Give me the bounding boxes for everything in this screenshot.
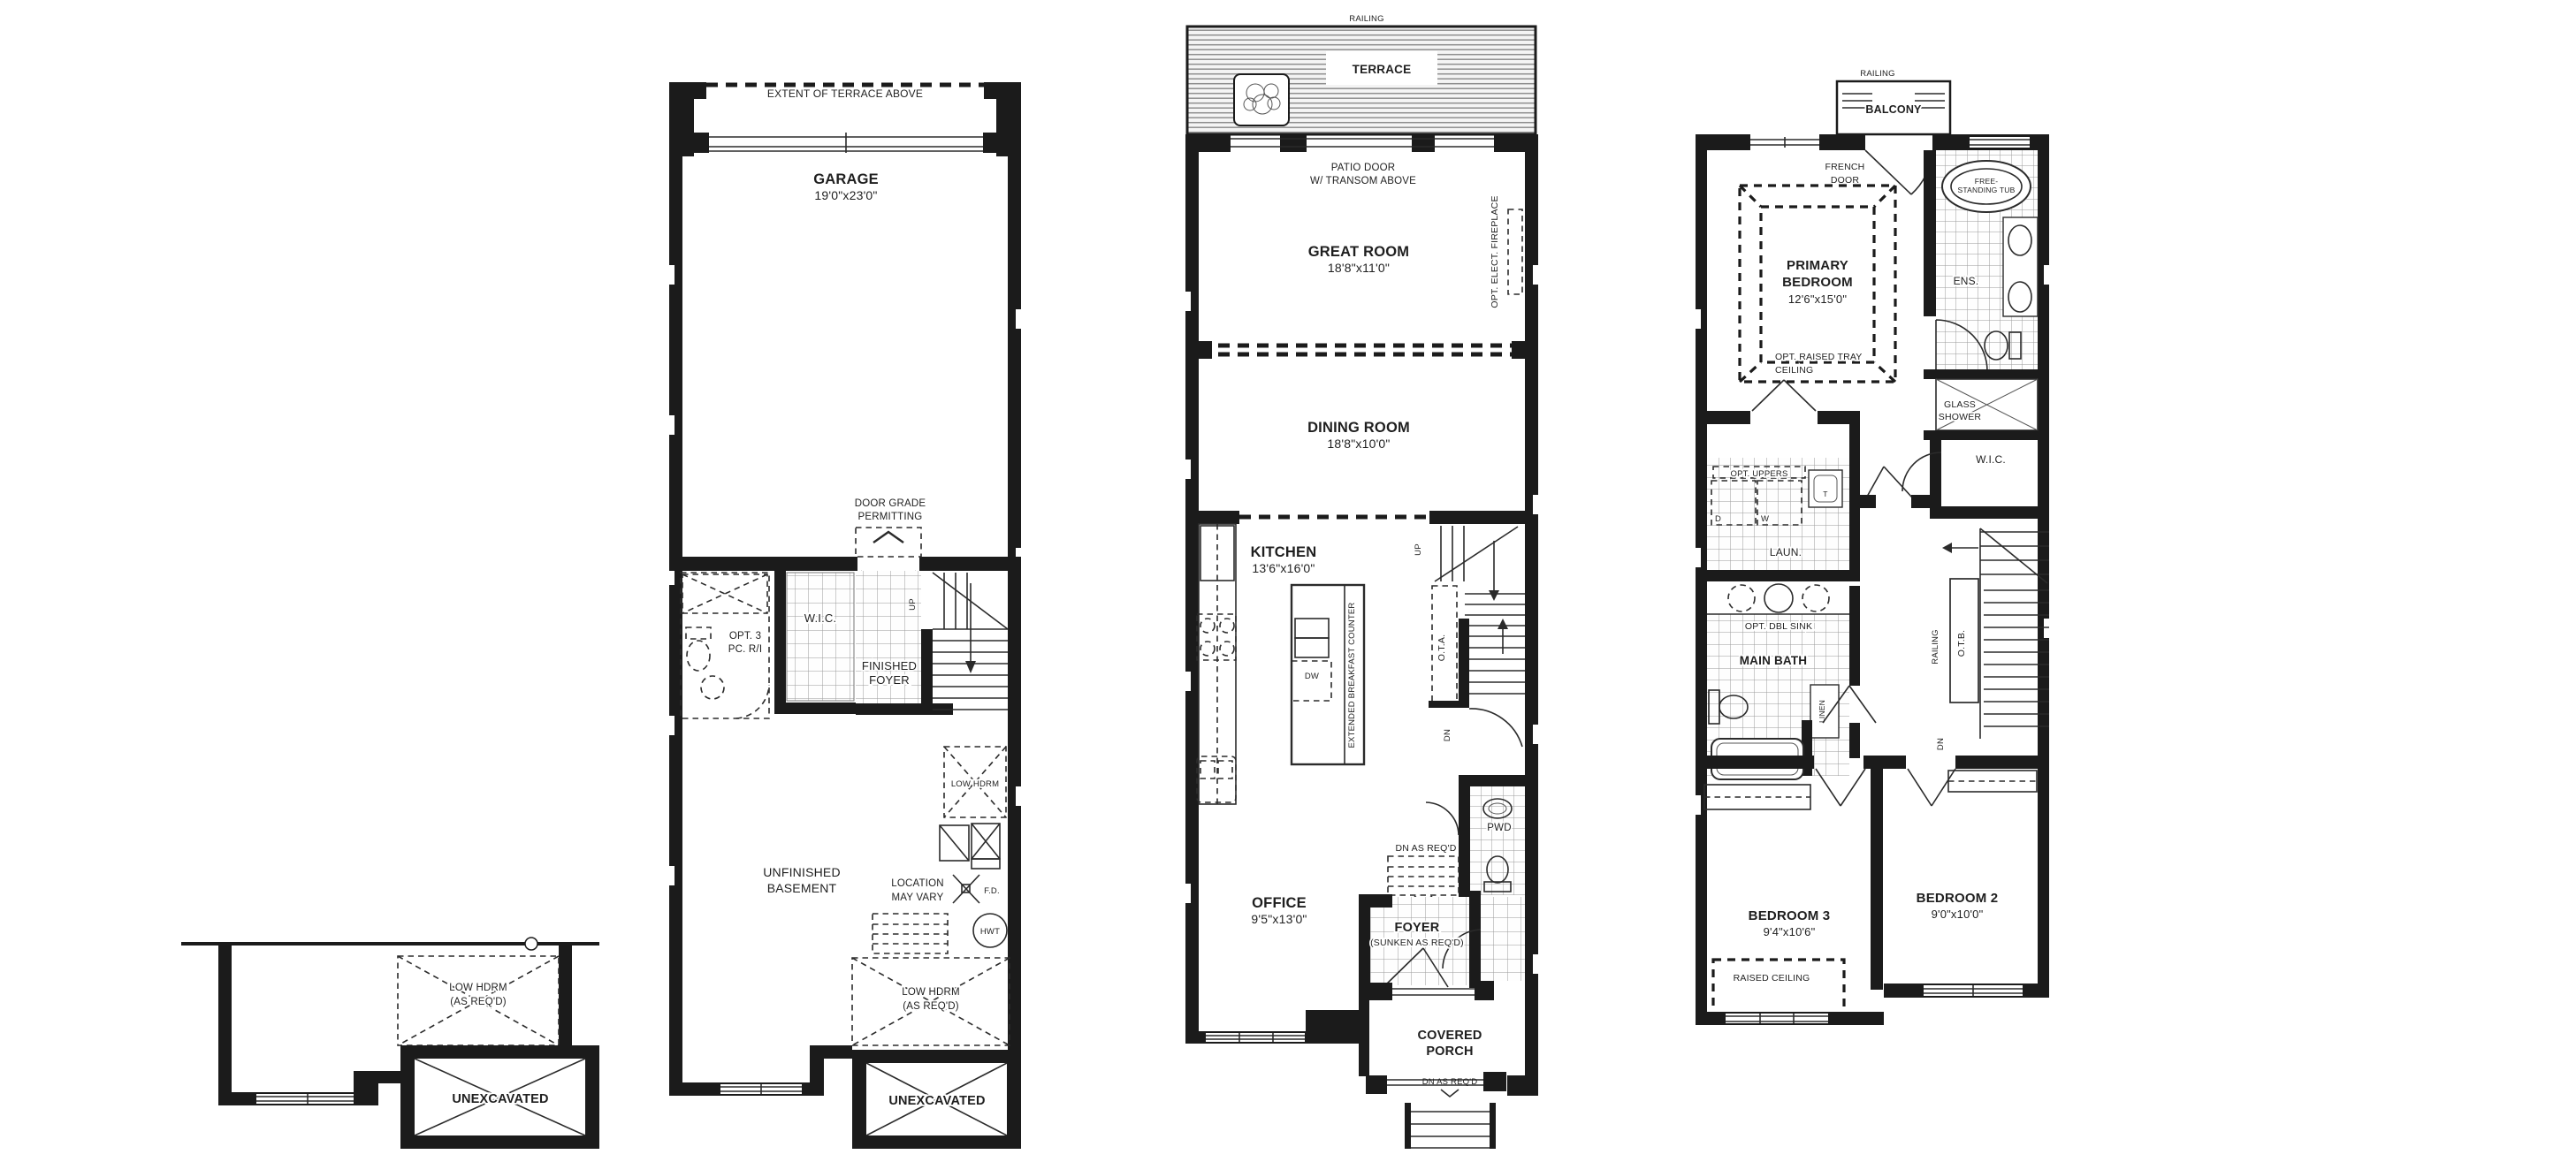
washer-label: W <box>1761 514 1769 524</box>
basement-unexcavated: UNEXCAVATED <box>852 1050 1021 1149</box>
opt-fireplace: OPT. ELECT. FIREPLACE <box>1490 195 1522 308</box>
stair-railing-label: RAILING <box>1931 629 1940 664</box>
tray-ceiling-sublabel: CEILING <box>1775 365 1813 376</box>
upper-wic-label: W.I.C. <box>1976 453 2006 466</box>
patio-door: PATIO DOOR W/ TRANSOM ABOVE <box>1185 134 1536 186</box>
glass-shower: GLASS SHOWER <box>1924 369 2038 440</box>
porch-steps <box>1405 1103 1496 1149</box>
plan-main-floor: RAILING TERRACE PATIO DOOR W/ TRANSOM <box>1185 14 1538 1149</box>
primary-bedroom: PRIMARY BEDROOM 12'6"x15'0" OPT. RAISED … <box>1696 186 1895 424</box>
opt-bath-label: OPT. 3 <box>729 631 761 642</box>
raised-ceiling-label: RAISED CEILING <box>1734 973 1810 984</box>
low-hdrm-upper-label: LOW HDRM <box>951 779 999 789</box>
finished-foyer: FINISHED FOYER <box>856 571 953 715</box>
covered-porch-label: COVERED <box>1417 1029 1482 1043</box>
opt-3pc-rough-in: OPT. 3 PC. R/I <box>681 573 769 718</box>
dining-room-label: DINING ROOM <box>1307 420 1410 436</box>
dbl-sink-label: OPT. DBL SINK <box>1745 621 1812 632</box>
opt-uppers-label: OPT. UPPERS <box>1730 469 1787 479</box>
foundation-low-headroom-zone: LOW HDRM (AS REQ'D) <box>398 956 559 1045</box>
ground-terrace-extent: EXTENT OF TERRACE ABOVE <box>669 82 1021 156</box>
french-door: FRENCH DOOR <box>1825 150 1932 194</box>
laundry-tub-label: T <box>1823 490 1827 498</box>
door-grade-sublabel: PERMITTING <box>858 512 923 522</box>
dw-label: DW <box>1305 672 1319 681</box>
low-hdrm-req-label: LOW HDRM <box>902 987 960 998</box>
hwt-label: HWT <box>980 927 1000 937</box>
french-door-label: FRENCH <box>1825 162 1865 172</box>
foyer: FOYER (SUNKEN AS REQ'D) <box>1359 891 1525 1000</box>
floor-drain: F.D. <box>953 875 1000 903</box>
location-may-vary-label: LOCATION <box>891 878 944 889</box>
kitchen-counter <box>1197 524 1236 804</box>
extent-of-terrace-label: EXTENT OF TERRACE ABOVE <box>767 87 923 100</box>
office-label: OFFICE <box>1252 895 1307 911</box>
low-hdrm-label: LOW HDRM <box>449 983 507 993</box>
bedroom2-dim: 9'0"x10'0" <box>1932 908 1984 921</box>
bedroom3-label: BEDROOM 3 <box>1749 908 1831 923</box>
ota-label: O.T.A. <box>1437 634 1447 661</box>
office-dim: 9'5"x13'0" <box>1251 912 1307 926</box>
location-may-vary-sublabel: MAY VARY <box>892 892 944 903</box>
bedroom3-dim: 9'4"x10'6" <box>1764 925 1816 938</box>
main-railing-label: RAILING <box>1349 14 1383 24</box>
low-hdrm-sublabel: (AS REQ'D) <box>450 997 507 1007</box>
main-stairs: UP O.T.A. DN <box>1414 526 1525 747</box>
kitchen-island: DW EXTENDED BREAKFAST COUNTER <box>1292 585 1364 764</box>
dn-as-reqd-lower-label: DN AS REQ'D <box>1422 1077 1478 1087</box>
otb-label: O.T.B. <box>1956 630 1967 657</box>
primary-dim: 12'6"x15'0" <box>1788 292 1847 306</box>
laundry-label: LAUN. <box>1770 546 1802 558</box>
garage-label: GARAGE <box>813 171 879 187</box>
foundation-unexcavated-zone: UNEXCAVATED <box>400 1045 599 1149</box>
bedroom2: BEDROOM 2 9'0"x10'0" <box>1884 771 2049 998</box>
opt-bath-sublabel: PC. R/I <box>728 644 762 655</box>
foyer-sublabel: (SUNKEN AS REQ'D) <box>1370 938 1464 948</box>
terrace: TERRACE <box>1187 27 1536 134</box>
tray-ceiling-label: OPT. RAISED TRAY <box>1775 352 1863 362</box>
low-hdrm-req-sublabel: (AS REQ'D) <box>903 1001 959 1012</box>
dn-as-reqd-upper: DN AS REQ'D <box>1388 843 1459 903</box>
floorplan-sheet: LOW HDRM (AS REQ'D) UNEXCAVATED EXTENT O… <box>0 0 2576 1162</box>
great-room-dim: 18'8"x11'0" <box>1328 261 1390 275</box>
kitchen-dim: 13'6"x16'0" <box>1252 561 1315 575</box>
garage-dim: 19'0"x23'0" <box>814 188 877 202</box>
unfinished-basement-sublabel: BASEMENT <box>767 881 837 895</box>
main-dn-label: DN <box>1443 729 1452 741</box>
patio-door-sublabel: W/ TRANSOM ABOVE <box>1310 176 1416 186</box>
ground-wic-label: W.I.C. <box>804 611 837 625</box>
floorplan-drawing: LOW HDRM (AS REQ'D) UNEXCAVATED EXTENT O… <box>0 0 2576 1162</box>
dn-as-reqd-upper-label: DN AS REQ'D <box>1396 843 1457 854</box>
kitchen-label: KITCHEN <box>1251 544 1317 560</box>
finished-foyer-label: FINISHED <box>862 659 917 672</box>
dryer-label: D <box>1715 514 1721 524</box>
bedroom-level-walls <box>1696 756 2049 990</box>
basement-low-headroom-upper: LOW HDRM <box>944 747 1006 817</box>
ground-up-label: UP <box>908 598 918 611</box>
glass-shower-sublabel: SHOWER <box>1939 412 1982 422</box>
balcony-label: BALCONY <box>1865 103 1922 116</box>
primary-sublabel: BEDROOM <box>1782 275 1853 290</box>
unfinished-basement-label: UNFINISHED <box>763 865 841 879</box>
laundry: OPT. UPPERS D W T LAUN. <box>1696 411 1860 581</box>
ground-wic: W.I.C. <box>774 571 858 714</box>
basement-laundry-rough-in <box>940 824 1000 869</box>
door-grade-label: DOOR GRADE <box>855 498 926 509</box>
tub-label: FREE- <box>1975 177 1999 186</box>
plan-ground-floor: EXTENT OF TERRACE ABOVE GARAGE 19'0"x23'… <box>669 82 1021 1149</box>
upper-hall-doors <box>1856 467 1941 508</box>
bedroom3: BEDROOM 3 9'4"x10'6" RAISED CEILING <box>1696 785 1884 1025</box>
foyer-label: FOYER <box>1395 921 1440 935</box>
unexcavated-label: UNEXCAVATED <box>452 1092 548 1106</box>
main-bath: OPT. DBL SINK MAIN BATH LINEN <box>1707 581 1876 779</box>
covered-porch-sublabel: PORCH <box>1426 1044 1473 1059</box>
plan-foundation-partial: LOW HDRM (AS REQ'D) UNEXCAVATED <box>181 938 599 1149</box>
great-room-label: GREAT ROOM <box>1308 244 1409 260</box>
terrace-label: TERRACE <box>1353 63 1412 76</box>
basement-front-wall <box>669 1045 852 1096</box>
ens-label: ENS. <box>1954 275 1979 287</box>
ground-unexcavated-label: UNEXCAVATED <box>888 1094 985 1108</box>
finished-foyer-sublabel: FOYER <box>869 673 910 687</box>
fireplace-label: OPT. ELECT. FIREPLACE <box>1490 195 1500 308</box>
french-door-sublabel: DOOR <box>1831 175 1860 186</box>
main-bath-label: MAIN BATH <box>1740 654 1808 667</box>
glass-shower-label: GLASS <box>1944 399 1976 410</box>
main-up-label: UP <box>1414 543 1423 556</box>
dining-room-dim: 18'8"x10'0" <box>1327 437 1390 451</box>
pwd-label: PWD <box>1487 823 1511 833</box>
bedroom2-label: BEDROOM 2 <box>1917 891 1999 906</box>
covered-porch: COVERED PORCH DN AS REQ'D <box>1359 1000 1538 1097</box>
balcony: BALCONY <box>1837 81 1950 134</box>
basement-low-headroom-lower: LOW HDRM (AS REQ'D) <box>852 958 1010 1045</box>
basement-dashed-steps <box>873 914 948 953</box>
upper-stairs: RAILING O.T.B. DN <box>1930 506 2049 750</box>
terrace-planter <box>1234 74 1289 125</box>
tub-sublabel: STANDING TUB <box>1958 186 2016 194</box>
fd-label: F.D. <box>984 886 1000 896</box>
office-front-wall <box>1199 1010 1366 1044</box>
primary-label: PRIMARY <box>1787 258 1848 273</box>
upper-dn-label: DN <box>1936 738 1946 750</box>
plan-second-floor: RAILING BALCONY <box>1696 69 2049 1025</box>
upper-railing-label: RAILING <box>1860 69 1894 79</box>
garage-door <box>694 133 998 153</box>
kitchen-boundary <box>1199 511 1525 524</box>
patio-door-label: PATIO DOOR <box>1331 163 1396 173</box>
ceiling-break-line <box>1185 341 1538 359</box>
ensuite: FREE- STANDING TUB ENS. <box>1924 150 2038 371</box>
powder-room: PWD <box>1426 775 1525 897</box>
breakfast-counter-label: EXTENDED BREAKFAST COUNTER <box>1347 603 1357 748</box>
hot-water-tank: HWT <box>973 914 1007 947</box>
